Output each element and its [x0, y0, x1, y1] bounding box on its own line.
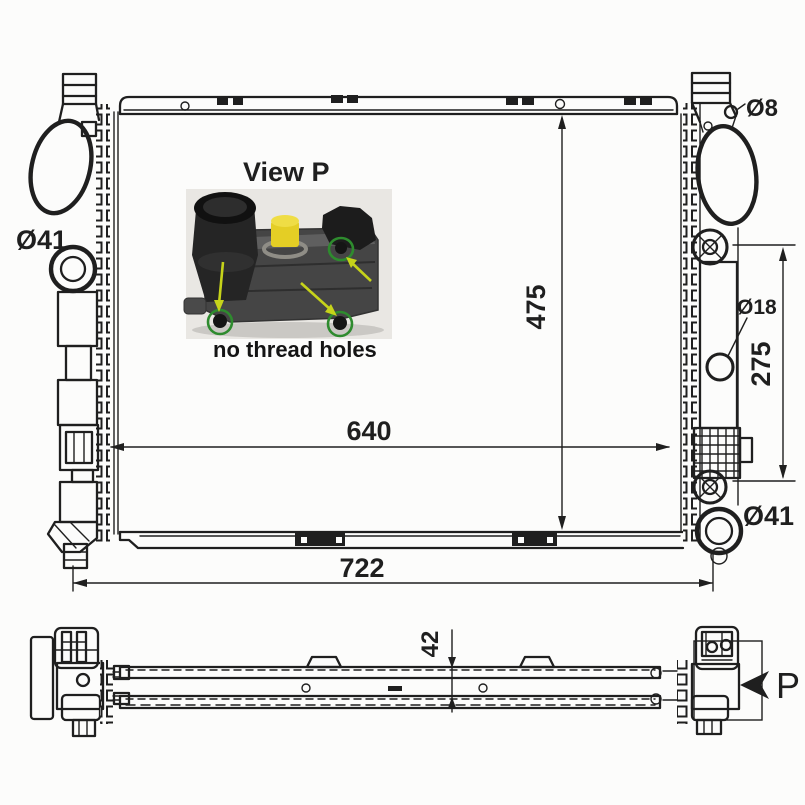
left-tank-ribs-lower — [60, 482, 97, 522]
label-port-41-top-left: Ø41 — [16, 225, 67, 255]
technical-drawing-page: 475 640 722 275 Ø41 Ø41 Ø8 — [0, 0, 805, 805]
dim-275: 275 — [733, 245, 795, 481]
dim-640: 640 — [110, 416, 670, 451]
label-port-41-bottom-right: Ø41 — [743, 501, 794, 531]
left-tank-ribs — [58, 292, 97, 425]
dim-475: 475 — [521, 115, 566, 530]
left-bottom-bracket — [48, 522, 97, 568]
right-tank-ribs — [700, 262, 737, 428]
bottom-right-serration — [677, 660, 691, 724]
inset-note: no thread holes — [213, 337, 377, 362]
svg-text:Ø18: Ø18 — [737, 296, 777, 319]
view-direction-p: P — [740, 665, 800, 706]
inset-title: View P — [243, 157, 330, 187]
radiator-drawing: 475 640 722 275 Ø41 Ø41 Ø8 — [0, 0, 805, 805]
top-bar-hole — [181, 102, 189, 110]
right-grid-bracket — [694, 428, 752, 478]
photo-filler-neck — [192, 192, 258, 302]
bottom-left-serration — [100, 660, 113, 724]
view-p-inset: View P — [184, 157, 392, 362]
mount-hole-18 — [707, 354, 733, 380]
rail-tab — [307, 657, 341, 667]
left-tank-oval-chamber — [21, 114, 100, 219]
photo-side-nub — [184, 298, 206, 314]
core-bottom-bar — [120, 532, 683, 548]
bottom-right-bracket — [677, 627, 762, 734]
inset-photo — [184, 189, 392, 339]
dim-640-label: 640 — [346, 416, 391, 446]
top-bar-hole-center — [556, 100, 565, 109]
right-tank-oval-chamber — [692, 123, 762, 227]
dim-722: 722 — [73, 552, 713, 591]
bottom-rails — [114, 657, 677, 708]
front-view: 475 640 722 275 Ø41 Ø41 Ø8 — [16, 73, 795, 591]
core-left-seam — [114, 112, 118, 534]
right-top-fitting — [692, 73, 736, 132]
view-p-arrow-label: P — [776, 665, 800, 706]
label-hole-8: Ø8 — [738, 95, 778, 122]
dim-475-label: 475 — [521, 284, 551, 329]
dim-275-label: 275 — [746, 341, 776, 386]
right-upper-fitting — [693, 230, 727, 264]
svg-text:Ø8: Ø8 — [746, 95, 778, 122]
rail-tab — [520, 657, 554, 667]
view-p-arrow-icon — [740, 671, 769, 699]
left-tank — [21, 74, 110, 568]
right-port-41 — [697, 509, 741, 564]
left-tank-bracket — [60, 425, 98, 482]
dim-42-label: 42 — [417, 631, 444, 658]
top-clip-mark — [217, 98, 228, 105]
dim-722-label: 722 — [339, 553, 384, 583]
core-top-bar — [120, 95, 677, 114]
bottom-view: 42 P — [31, 627, 800, 736]
bottom-left-bracket — [31, 628, 120, 736]
